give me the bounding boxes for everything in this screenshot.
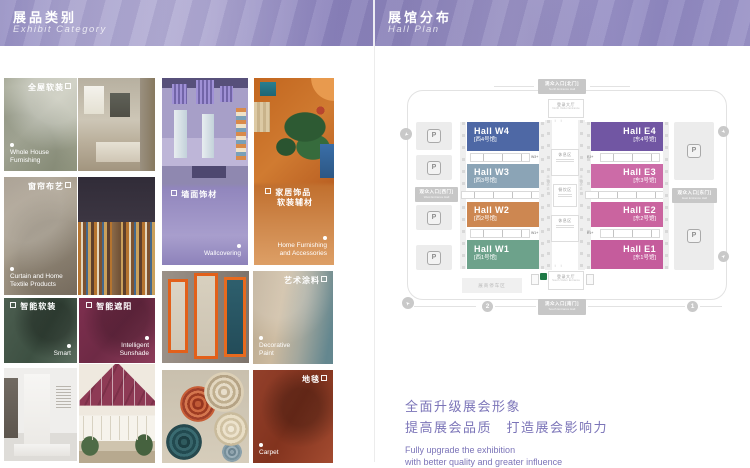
tagline-block: 全面升级展会形象 提高展会品质 打造展会影响力 Fully upgrade th… <box>405 396 735 468</box>
category-tile-wallcovering: 墙面饰材 Wallcovering <box>162 78 248 265</box>
road-line <box>700 306 722 307</box>
hall-plan-map: 观众入口[北门]North Entrance Hall 登录大厅North Vi… <box>398 75 742 320</box>
micro-text <box>558 194 572 195</box>
road-line <box>494 86 534 87</box>
dock-corridor-e4-e3 <box>600 153 660 162</box>
photo-sunroom <box>79 364 155 463</box>
fire-lane-label-left: 消防通道 <box>546 175 550 191</box>
dot-icon <box>323 236 327 240</box>
category-label-en: Curtain and Home Textile Products <box>10 267 72 289</box>
south-visitor-lobby: 登录大厅South Visitor Entrance <box>548 271 584 290</box>
micro-text <box>556 227 574 228</box>
exhibitor-parking-label: 展商停车区 <box>462 278 522 293</box>
brochure-spread: 展品类别 Exhibit Category 展馆分布 Hall Plan 全屋软… <box>0 0 750 468</box>
square-bullet-icon <box>321 276 327 282</box>
category-label-en: Carpet <box>259 443 279 457</box>
right-page-subtitle: Hall Plan <box>388 24 440 35</box>
north-entrance-label: 观众入口[北门]North Entrance Hall <box>538 79 586 94</box>
micro-text <box>558 196 572 197</box>
corridor-label-w3: W3+ <box>531 155 538 159</box>
parking-icon: P <box>427 161 441 175</box>
service-box <box>531 274 539 285</box>
header-banner: 展品类别 Exhibit Category 展馆分布 Hall Plan <box>0 0 750 46</box>
photo-fabric-store <box>78 177 155 295</box>
category-tile-whole-house: 全屋软装 Whole House Furnishing <box>4 78 77 171</box>
tagline-en-line1: Fully upgrade the exhibition <box>405 444 735 456</box>
road-line <box>588 306 685 307</box>
photo-bedroom <box>78 78 155 171</box>
corridor-label-e1: E1+ <box>587 231 593 235</box>
parking-icon: P <box>427 129 441 143</box>
category-tile-carpet: 地毯 Carpet <box>253 370 333 463</box>
hall-w4: Hall W4[西4号馆] <box>467 122 539 151</box>
category-label-zh: 智能遮阳 <box>85 302 132 312</box>
east-entrance-label: 观众入口[东门]East Entrance Hall <box>672 188 717 203</box>
photo-framed-panels <box>162 271 249 363</box>
exit-icon <box>540 273 547 280</box>
micro-text <box>556 159 574 160</box>
page-gutter-line <box>374 46 375 462</box>
category-label-zh: 地毯 <box>302 375 328 385</box>
tagline-en: Fully upgrade the exhibition with better… <box>405 444 735 468</box>
category-tile-decorative-paint: 艺术涂料 Decorative Paint <box>253 271 333 364</box>
left-page-subtitle: Exhibit Category <box>13 24 107 35</box>
category-label-en: Whole House Furnishing <box>10 143 68 165</box>
parking-icon: P <box>427 211 441 225</box>
rest-area-south: 休息区 <box>551 215 579 242</box>
square-bullet-icon <box>65 182 71 188</box>
square-bullet-icon <box>171 190 177 196</box>
tagline-en-line2: with better quality and greater influenc… <box>405 456 735 468</box>
dot-icon <box>259 336 263 340</box>
square-bullet-icon <box>321 375 327 381</box>
parking-lot: P <box>416 245 452 270</box>
photo-gallery <box>4 368 77 461</box>
south-entrance-label: 观众入口[南门]South Entrance Hall <box>538 299 586 315</box>
parking-icon: P <box>687 144 701 158</box>
fire-lane-label-right: 消防通道 <box>579 175 583 191</box>
gate-1-marker: 1 <box>687 301 698 312</box>
category-label-en: Wallcovering <box>204 244 241 258</box>
category-label-zh: 智能软装 <box>9 302 56 312</box>
tagline-zh-line1: 全面升级展会形象 <box>405 396 735 417</box>
dot-icon <box>10 267 14 271</box>
north-visitor-lobby: 登录大厅North Visitor Entrance <box>548 99 584 118</box>
corridor-label-w1: W1+ <box>531 231 538 235</box>
loading-strip-east-outer <box>663 122 669 269</box>
dot-icon <box>145 336 149 340</box>
dot-icon <box>67 344 71 348</box>
flow-arrows: ↕↕ <box>554 263 566 268</box>
parking-lot: P <box>416 205 452 230</box>
canteen-area: 餐饮区 <box>553 184 577 207</box>
dot-icon <box>259 443 263 447</box>
dock-corridor-e2-e1 <box>600 229 660 238</box>
parking-lot: P <box>674 122 714 180</box>
category-tile-curtain: 窗帘布艺 Curtain and Home Textile Products <box>4 177 77 295</box>
parking-lot: P <box>416 122 452 150</box>
road-line <box>414 306 476 307</box>
west-entrance-label: 观众入口[西门]West Entrance Hall <box>415 187 458 202</box>
square-bullet-icon <box>10 302 16 308</box>
square-bullet-icon <box>86 302 92 308</box>
category-tile-sunshade: 智能遮阳 Intelligent Sunshade <box>79 298 155 363</box>
hall-w1: Hall W1[西1号馆] <box>467 240 539 269</box>
hall-e1: Hall E1[东1号馆] <box>591 240 663 269</box>
rest-area-north: 休息区 <box>551 149 579 176</box>
hall-e3: Hall E3[东3号馆] <box>591 164 663 188</box>
category-tile-smart: 智能软装 Smart <box>4 298 77 363</box>
category-label-zh: 家居饰品软装辅材 <box>264 188 313 209</box>
mid-corridor-east <box>585 191 669 199</box>
corridor-label-e3: E3+ <box>587 155 593 159</box>
hall-e2: Hall E2[东2号馆] <box>591 202 663 227</box>
road-line <box>495 306 536 307</box>
square-bullet-icon <box>265 188 271 194</box>
hall-w3: Hall W3[西3号馆] <box>467 164 539 188</box>
hall-w2: Hall W2[西2号馆] <box>467 202 539 227</box>
category-label-en: Home Furnishing and Accessories <box>265 236 327 258</box>
mid-corridor-west <box>461 191 545 199</box>
flow-arrows: ↕↕ <box>554 118 566 123</box>
micro-text <box>556 161 574 162</box>
dock-corridor-w4-w3 <box>470 153 530 162</box>
parking-icon: P <box>427 251 441 265</box>
category-label-zh: 艺术涂料 <box>284 276 328 286</box>
road-line <box>590 86 630 87</box>
category-label-zh: 墙面饰材 <box>170 190 217 200</box>
parking-icon: P <box>687 229 701 243</box>
tagline-zh-line2: 提高展会品质 打造展会影响力 <box>405 417 735 438</box>
hall-e4: Hall E4[东4号馆] <box>591 122 663 151</box>
category-label-en: Intelligent Sunshade <box>103 336 149 358</box>
parking-lot: P <box>674 202 714 270</box>
header-divider <box>373 0 375 46</box>
dot-icon <box>237 244 241 248</box>
parking-lot: P <box>416 155 452 180</box>
category-label-zh: 全屋软装 <box>28 83 72 93</box>
category-tile-home-furnishing: 家居饰品软装辅材 Home Furnishing and Accessories <box>254 78 334 265</box>
photo-carpet-rolls <box>162 370 249 463</box>
micro-text <box>556 225 574 226</box>
spine-facility-strip-left <box>545 120 552 270</box>
service-box <box>586 274 594 285</box>
square-bullet-icon <box>65 83 71 89</box>
dot-icon <box>10 143 14 147</box>
sunroom-roof <box>79 364 155 463</box>
category-label-en: Decorative Paint <box>259 336 305 358</box>
category-label-zh: 窗帘布艺 <box>28 182 72 192</box>
dock-corridor-w2-w1 <box>470 229 530 238</box>
spine-facility-strip-right <box>578 120 585 270</box>
category-label-en: Smart <box>54 344 71 358</box>
gate-2-marker: 2 <box>482 301 493 312</box>
